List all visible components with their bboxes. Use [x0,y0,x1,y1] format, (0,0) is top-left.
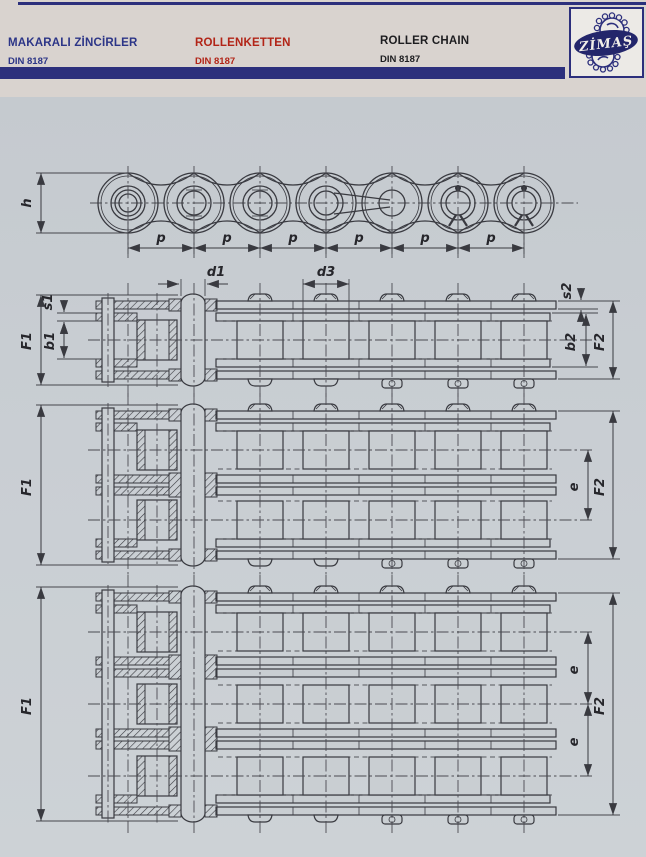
dim-label-s2: s2 [560,283,575,300]
dim-label-s1: s1 [41,294,56,311]
dim-label-h: h [20,198,35,207]
dim-label-F1: F1 [20,697,35,715]
dim-label-F2: F2 [593,333,608,351]
dim-label-d3: d3 [317,265,335,280]
dim-label-p: p [419,231,429,246]
dim-label-F2: F2 [593,478,608,496]
dim-label-p: p [287,231,297,246]
dim-label-F1: F1 [20,332,35,350]
dim-label-F2: F2 [593,697,608,715]
side-elevation-view: hpppppp [20,166,578,258]
dim-label-F1: F1 [20,478,35,496]
dim-label-p: p [155,231,165,246]
duplex-cross-section-view: F1eF2 [20,393,620,577]
dim-label-b1: b1 [43,332,58,350]
dim-label-p: p [221,231,231,246]
catalog-page: MAKARALI ZİNCİRLER DIN 8187 ROLLENKETTEN… [0,0,646,857]
dim-label-e: e [567,737,582,746]
dim-label-e: e [567,482,582,491]
simplex-cross-section-view: d1d3s1b1F1s2b2F2 [20,265,620,397]
dim-label-e: e [567,665,582,674]
dim-label-d1: d1 [207,265,225,280]
triplex-cross-section-view: F1eeF2 [20,575,620,833]
dim-label-p: p [485,231,495,246]
dim-label-p: p [353,231,363,246]
dim-label-b2: b2 [564,333,579,351]
technical-drawing: hppppppd1d3s1b1F1s2b2F2F1eF2F1eeF2 [0,0,646,857]
